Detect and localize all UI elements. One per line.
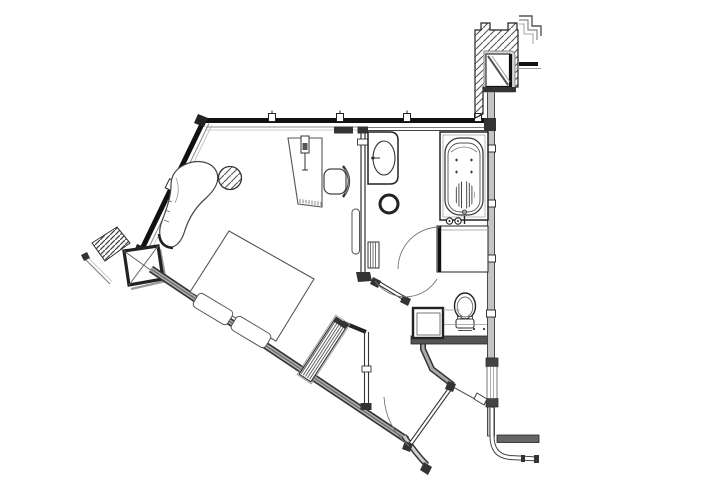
stepped-detail-lines (516, 16, 541, 69)
bathroom-partition-wall (334, 127, 372, 283)
bathroom-door (370, 277, 437, 306)
entry-door (384, 381, 487, 452)
floor-plan-canvas (0, 0, 707, 500)
canopy-stub-cap (81, 252, 90, 261)
stool (380, 195, 398, 213)
entry-zigzag-wall (423, 340, 453, 385)
toilet (441, 293, 487, 331)
closet-door-arc (398, 227, 440, 269)
corner-column-left (81, 227, 166, 289)
entry-wall-elbow (404, 436, 432, 475)
sink-vanity (368, 132, 398, 184)
minibar-cabinet (413, 308, 460, 338)
lintel-bar (519, 62, 538, 66)
closet (398, 226, 488, 272)
louver-luggage-rack (297, 315, 350, 384)
floor-plan-sheet (0, 0, 707, 500)
chaise-lounge (159, 162, 218, 248)
desk (288, 136, 322, 207)
shaft-window-detail (484, 51, 515, 92)
bottom-right-walls (492, 408, 539, 463)
column-base-bar (483, 87, 516, 92)
side-table (219, 167, 242, 190)
door-strike (474, 393, 487, 405)
bathtub (440, 132, 488, 224)
pocket-door-leaf (352, 209, 360, 254)
towel-radiator (368, 242, 379, 268)
desk-chair (324, 166, 349, 197)
structural-column-top-right (475, 23, 518, 118)
balcony-door-frame (486, 358, 498, 407)
wall-end-block (194, 114, 208, 127)
wall-junction (484, 118, 496, 131)
bed (190, 231, 314, 349)
